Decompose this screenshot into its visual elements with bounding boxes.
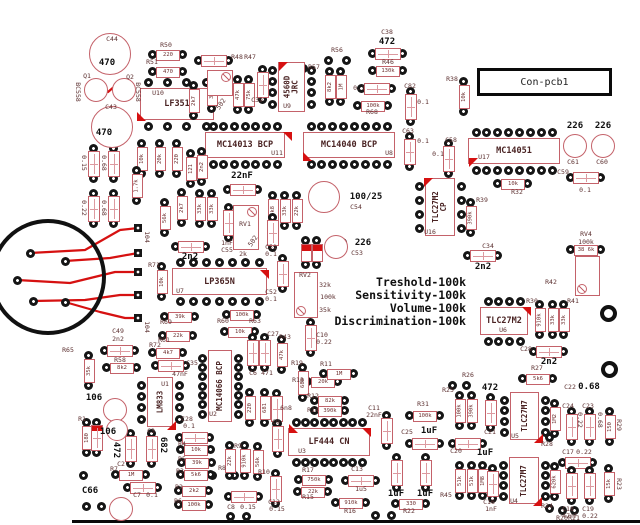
- ic-label: LF444 CN: [309, 437, 350, 447]
- resistor-39k: 39k: [185, 458, 209, 469]
- silkscreen-label-r4: R4: [178, 440, 186, 448]
- resistor-2k7: 2k7: [189, 89, 200, 113]
- resistor-value: 390k: [468, 211, 474, 224]
- solder-pad: [241, 258, 250, 267]
- resistor-value: 22k: [227, 456, 233, 466]
- silkscreen-label-104: 104: [143, 321, 151, 333]
- resistor-390k: 390k: [467, 399, 478, 423]
- silkscreen-label-472: 472: [482, 383, 498, 393]
- solder-pad: [482, 128, 491, 137]
- silkscreen-label-r11: R11: [320, 360, 332, 368]
- capacitor: [108, 196, 120, 222]
- solder-pad: [268, 100, 277, 109]
- silkscreen-label-rv4: RV4: [580, 230, 592, 238]
- silkscreen-label-0-15: 0.15: [80, 155, 88, 171]
- solder-pad: [175, 381, 184, 390]
- solder-pad: [499, 461, 508, 470]
- solder-pad: [504, 128, 513, 137]
- solder-pad: [202, 297, 211, 306]
- solder-pad: [516, 297, 525, 306]
- silkscreen-label-r20: R20: [556, 514, 568, 522]
- solder-pad: [494, 337, 503, 346]
- solder-pad: [541, 461, 550, 470]
- silkscreen-label-1uf: 1uF: [417, 489, 433, 499]
- capacitor: [146, 436, 158, 462]
- ic-label: LF351: [164, 99, 190, 109]
- solder-pad: [526, 128, 535, 137]
- silkscreen-label-100-25: 100/25: [350, 192, 383, 202]
- capacitor: [108, 151, 120, 177]
- solder-pad: [189, 297, 198, 306]
- silkscreen-label-22nf: 22nF: [366, 411, 382, 419]
- resistor-681: 681: [260, 396, 271, 420]
- silkscreen-label-r56: R56: [331, 46, 343, 54]
- silkscreen-label-r57: R57: [308, 63, 320, 71]
- resistor-1M: 1M: [119, 470, 143, 481]
- pin1-marker-icon: [283, 132, 292, 141]
- solder-pad: [457, 210, 466, 219]
- solder-pad: [500, 406, 509, 415]
- silkscreen-label-r21: R21: [568, 514, 580, 522]
- solder-pad: [176, 297, 185, 306]
- silkscreen-label-c39: C39: [251, 96, 263, 104]
- resistor-100k: 100k: [455, 399, 466, 423]
- solder-pad: [548, 166, 557, 175]
- capacitor: [566, 473, 578, 499]
- con-pcb1-label: Con-pcb1: [520, 77, 568, 88]
- resistor-470: 470: [156, 67, 180, 78]
- capacitor: [487, 471, 499, 497]
- silkscreen-label-c3: C3: [147, 427, 155, 435]
- pin1-marker-icon: [137, 112, 146, 121]
- capacitor: [247, 340, 259, 366]
- silkscreen-label-0-1: 0.1: [265, 250, 277, 258]
- solder-pad: [255, 258, 264, 267]
- transistor-outline: [112, 78, 136, 102]
- silkscreen-label-106: 106: [86, 393, 102, 403]
- resistor-value: 2k7: [179, 203, 185, 213]
- silkscreen-label-c28: C28: [520, 345, 532, 353]
- solder-pad: [292, 458, 301, 467]
- silkscreen-label-471: 471: [261, 369, 273, 377]
- resistor-2k2: 2k2: [182, 486, 206, 497]
- capacitor: [470, 250, 496, 262]
- silkscreen-label-r48: R48: [231, 53, 243, 61]
- ic-label: TLC27M2: [486, 316, 522, 326]
- silkscreen-label-472: 472: [111, 442, 121, 458]
- capacitor: [88, 196, 100, 222]
- solder-pad: [144, 122, 153, 131]
- silkscreen-label-682: 682: [158, 437, 168, 453]
- solder-pad: [541, 471, 550, 480]
- resistor-value: 1M8: [480, 476, 486, 486]
- resistor-130k: 130k: [376, 66, 400, 77]
- silkscreen-label-c35: C35: [186, 359, 198, 367]
- resistor-value: 100k: [457, 404, 463, 417]
- silkscreen-label-r41: R41: [567, 297, 579, 305]
- solder-pad: [383, 160, 392, 169]
- diode: [312, 244, 323, 262]
- solder-pad: [209, 160, 218, 169]
- capacitor: [125, 436, 137, 462]
- silkscreen-label-0-22: 0.22: [316, 338, 332, 346]
- silkscreen-label-u7: U7: [176, 287, 184, 295]
- resistor-8k2: 8k2: [325, 75, 336, 99]
- capacitor: [259, 340, 271, 366]
- electrolytic-capacitor: [91, 106, 133, 148]
- solder-pad: [230, 122, 239, 131]
- silkscreen-label-r14: R14: [307, 406, 319, 414]
- board-edge-line: [72, 520, 640, 523]
- solder-pad: [61, 257, 70, 266]
- solder-pad: [226, 512, 235, 521]
- resistor-value: 33k: [282, 206, 288, 216]
- resistor-value: 10k: [139, 154, 145, 164]
- solder-pad: [472, 128, 481, 137]
- silkscreen-label-c6: C6: [249, 369, 257, 377]
- solder-pad: [97, 502, 106, 511]
- silkscreen-label-r17: R17: [302, 466, 314, 474]
- silkscreen-label-0-1: 0.1: [432, 150, 444, 158]
- silkscreen-label-c59: C59: [557, 168, 569, 176]
- silkscreen-label-r31: R31: [417, 400, 429, 408]
- resistor-220: 220: [245, 396, 256, 420]
- silkscreen-label-u9: U9: [283, 102, 291, 110]
- solder-pad: [383, 122, 392, 131]
- solder-pad: [175, 403, 184, 412]
- silkscreen-label-226: 226: [595, 121, 611, 131]
- silkscreen-label-r45: R45: [440, 491, 452, 499]
- silkscreen-label-c53: C53: [351, 249, 363, 257]
- solder-pad: [350, 160, 359, 169]
- solder-pad: [79, 471, 88, 480]
- solder-pad: [499, 481, 508, 490]
- capacitor: [584, 414, 596, 440]
- silkscreen-label-q1: Q1: [83, 72, 91, 80]
- solder-pad: [361, 122, 370, 131]
- solder-pad: [198, 410, 207, 419]
- silkscreen-label-c23: C23: [582, 402, 594, 410]
- resistor-5k6: 5k6: [184, 470, 208, 481]
- solder-pad: [320, 418, 329, 427]
- silkscreen-label-u16: U16: [424, 228, 436, 236]
- resistor-620k: 620k: [550, 470, 561, 494]
- silkscreen-label-r71: R71: [148, 261, 160, 269]
- silkscreen-label-470: 470: [99, 58, 115, 68]
- solder-pad: [457, 224, 466, 233]
- solder-pad: [504, 166, 513, 175]
- resistor-10k: 10k: [184, 445, 208, 456]
- silkscreen-label-r28: R28: [541, 440, 553, 448]
- silkscreen-label-0-1: 0.1: [265, 295, 277, 303]
- electrolytic-capacitor: [308, 181, 340, 213]
- solder-pad: [198, 372, 207, 381]
- solder-pad: [198, 363, 207, 372]
- solder-pad: [515, 128, 524, 137]
- capacitor: [230, 184, 256, 196]
- resistor-220: 220: [156, 50, 180, 61]
- resistor-value: 56k: [255, 457, 261, 467]
- silkscreen-label-0-68: 0.68: [578, 382, 600, 392]
- silkscreen-label-bc558: BC558: [134, 82, 142, 102]
- solder-pad: [307, 77, 316, 86]
- resistor-value: 47k: [279, 350, 285, 360]
- silkscreen-label-r46: R46: [382, 58, 394, 66]
- silkscreen-label-0-68: 0.68: [100, 155, 108, 171]
- silkscreen-label-c44: C44: [106, 35, 118, 43]
- resistor-value: 33k: [561, 315, 567, 325]
- diode: [301, 244, 312, 262]
- silkscreen-label-1uf: 1uF: [421, 426, 437, 436]
- resistor-22k: 22k: [292, 199, 303, 223]
- silkscreen-label-r3: R3: [176, 467, 184, 475]
- silkscreen-label-r9: R9: [234, 442, 242, 450]
- solder-pad: [198, 382, 207, 391]
- solder-pad: [415, 182, 424, 191]
- capacitor: [391, 460, 403, 486]
- solder-pad: [219, 122, 228, 131]
- resistor-38-6k: 38 6k: [574, 245, 598, 256]
- silkscreen-label-r32: R32: [511, 188, 523, 196]
- resistor-value: 180: [84, 433, 90, 443]
- solder-pad: [339, 122, 348, 131]
- silkscreen-label-r72: R72: [149, 341, 161, 349]
- silkscreen-label-r13: R13: [292, 376, 304, 384]
- silkscreen-label-47nf: 47nF: [172, 370, 188, 378]
- solder-pad: [234, 363, 243, 372]
- resistor-150: 150: [605, 415, 616, 439]
- solder-pad: [526, 166, 535, 175]
- solder-pad: [13, 276, 22, 285]
- silkscreen-label-c61: C61: [567, 158, 579, 166]
- silkscreen-label-r30: R30: [526, 297, 538, 305]
- silkscreen-label-0-22: 0.22: [582, 512, 598, 520]
- solder-pad: [339, 458, 348, 467]
- solder-pad: [242, 512, 251, 521]
- solder-pad: [541, 406, 550, 415]
- silkscreen-label-rv1: RV1: [239, 220, 251, 228]
- solder-pad: [262, 160, 271, 169]
- silkscreen-label-r24: R24: [541, 502, 553, 510]
- resistor-value: 681: [262, 403, 268, 413]
- ic-label: 4560D JRC: [283, 76, 299, 99]
- capacitor: [485, 400, 497, 426]
- solder-pad: [537, 128, 546, 137]
- electrolytic-capacitor: [563, 134, 587, 158]
- ic-label: TLC27M2 CP: [432, 191, 448, 223]
- resistor-value: 51k: [457, 476, 463, 486]
- solder-pad: [198, 400, 207, 409]
- trimmer-screw-icon: [296, 306, 306, 316]
- silkscreen-label-u5: U5: [511, 432, 519, 440]
- resistor-390k: 390k: [318, 406, 342, 417]
- silkscreen-label-0-1: 0.1: [146, 491, 158, 499]
- ic-label: LP365N: [204, 277, 235, 287]
- note-discrimination: Discrimination-100k: [300, 315, 466, 328]
- resistor-750k: 750k: [302, 475, 326, 486]
- solder-pad: [175, 392, 184, 401]
- ic-label: MC14066 BCP: [216, 361, 224, 411]
- resistor-33k: 33k: [207, 197, 218, 221]
- solder-pad: [415, 224, 424, 233]
- resistor-value: 390k: [469, 404, 475, 417]
- silkscreen-label-106: 106: [100, 427, 116, 437]
- solder-pad: [137, 392, 146, 401]
- silkscreen-label-0-22: 0.22: [576, 412, 584, 428]
- silkscreen-label-r15: R15: [302, 493, 314, 501]
- ic-label: MC14051: [496, 146, 532, 156]
- solder-pad: [371, 511, 380, 520]
- silkscreen-label-100k: 100k: [578, 238, 594, 246]
- solder-pad: [500, 428, 509, 437]
- solder-pad: [342, 56, 351, 65]
- silkscreen-label-0-22: 0.22: [576, 448, 592, 456]
- capacitor: [88, 151, 100, 177]
- solder-pad: [310, 418, 319, 427]
- capacitor: [443, 146, 455, 172]
- resistor-value: 2k7: [191, 96, 197, 106]
- solder-pad: [307, 100, 316, 109]
- solder-pad: [234, 391, 243, 400]
- resistor-value: 20k: [157, 154, 163, 164]
- silkscreen-label-0-68: 0.68: [100, 200, 108, 216]
- ic-lf351: LF351: [140, 88, 214, 120]
- capacitor: [412, 438, 438, 450]
- electrolytic-capacitor: [591, 134, 615, 158]
- silkscreen-label-c55: C55: [221, 246, 233, 254]
- silkscreen-label-104: 104: [143, 231, 151, 243]
- silkscreen-label-c27: C27: [267, 330, 279, 338]
- solder-pad: [251, 160, 260, 169]
- solder-pad: [348, 418, 357, 427]
- silkscreen-label-c38: C38: [381, 28, 393, 36]
- solder-pad: [505, 297, 514, 306]
- square-pad: [134, 291, 142, 299]
- silkscreen-label-0-1: 0.1: [579, 186, 591, 194]
- solder-pad: [307, 88, 316, 97]
- silkscreen-label-c13: C13: [351, 465, 363, 473]
- silkscreen-label-35k: 35k: [319, 306, 331, 314]
- silkscreen-label-c24: C24: [562, 402, 574, 410]
- silkscreen-label-6n8: 6n8: [280, 404, 292, 412]
- solder-pad: [482, 166, 491, 175]
- solder-pad: [26, 249, 35, 258]
- resistor-15k: 15k: [604, 472, 615, 496]
- silkscreen-label-r12: R12: [307, 392, 319, 400]
- resistor-390k: 390k: [466, 206, 477, 230]
- resistor-10k: 10k: [459, 85, 470, 109]
- resistor-value: 8k2: [327, 82, 333, 92]
- resistor-910k: 910k: [535, 308, 546, 332]
- silkscreen-label-bc558: BC558: [74, 82, 82, 102]
- silkscreen-label-r2: R2: [175, 483, 183, 491]
- solder-pad: [209, 122, 218, 131]
- silkscreen-label-c2: C2: [117, 460, 125, 468]
- silkscreen-label-r50: R50: [160, 41, 172, 49]
- capacitor: [277, 261, 289, 287]
- resistor-35k: 35k: [84, 359, 95, 383]
- solder-pad: [29, 297, 38, 306]
- silkscreen-label-c20: C20: [450, 447, 462, 455]
- ic-label: TLC27M7: [521, 400, 529, 432]
- solder-pad: [137, 381, 146, 390]
- solder-pad: [350, 122, 359, 131]
- solder-pad: [215, 258, 224, 267]
- solder-pad: [324, 56, 333, 65]
- silkscreen-label-r60: R60: [217, 317, 229, 325]
- solder-pad: [241, 297, 250, 306]
- resistor-33k: 33k: [280, 199, 291, 223]
- solder-pad: [219, 160, 228, 169]
- silkscreen-label-r47: R47: [244, 53, 256, 61]
- silkscreen-label-u6: U6: [499, 326, 507, 334]
- resistor-4k7: 4k7: [156, 348, 180, 359]
- trimmer-screw-icon: [221, 72, 231, 82]
- silkscreen-label-1uf: 1uF: [477, 448, 493, 458]
- silkscreen-label-r68: R68: [366, 108, 378, 116]
- silkscreen-label-r10: R10: [258, 468, 270, 476]
- silkscreen-label-470: 470: [96, 128, 112, 138]
- solder-pad: [484, 337, 493, 346]
- pcb-silkscreen-board: Con-pcb1 Treshold-100k Sensitivity-100k …: [0, 0, 640, 525]
- resistor-33k: 33k: [548, 308, 559, 332]
- resistor-value: 1.7k: [134, 179, 140, 192]
- silkscreen-label-c58: C58: [445, 136, 457, 144]
- silkscreen-label-1uf: 1uF: [388, 489, 404, 499]
- solder-pad: [499, 471, 508, 480]
- silkscreen-label-r51: R51: [146, 58, 158, 66]
- solder-pad: [541, 481, 550, 490]
- trimmer-screw-icon: [247, 207, 257, 217]
- resistor-33k: 33k: [559, 308, 570, 332]
- resistor-33k: 33k: [195, 197, 206, 221]
- electrolytic-capacitor: [324, 235, 348, 259]
- solder-pad: [137, 403, 146, 412]
- solder-pad: [515, 166, 524, 175]
- silkscreen-label-0-15: 0.15: [240, 503, 256, 511]
- resistor-value: 121: [188, 164, 194, 174]
- silkscreen-label-2n2: 2n2: [182, 252, 198, 262]
- silkscreen-label-0-1: 0.1: [183, 422, 195, 430]
- solder-pad: [328, 122, 337, 131]
- capacitor: [201, 55, 227, 67]
- silkscreen-label-2n2: 2n2: [475, 262, 491, 272]
- silkscreen-label-q2: Q2: [126, 73, 134, 81]
- silkscreen-label-r42: R42: [545, 278, 557, 286]
- solder-pad: [241, 160, 250, 169]
- capacitor: [257, 72, 269, 98]
- silkscreen-label-r5: R5: [178, 455, 186, 463]
- solder-pad: [61, 298, 70, 307]
- pin1-marker-icon: [167, 421, 176, 430]
- silkscreen-label-r7: R7: [110, 465, 118, 473]
- silkscreen-label-2n2: 2n2: [541, 357, 557, 367]
- silkscreen-label-c49: C49: [112, 327, 124, 335]
- silkscreen-label-u4: U4: [510, 497, 518, 505]
- capacitor: [573, 172, 599, 184]
- solder-pad: [537, 166, 546, 175]
- resistor-value: 220: [247, 403, 253, 413]
- capacitor: [381, 418, 393, 444]
- solder-pad: [500, 396, 509, 405]
- pin1-marker-icon: [362, 428, 371, 437]
- capacitor: [420, 460, 432, 486]
- silkscreen-label-2k: 2k: [239, 250, 247, 258]
- resistor-value: 1M: [338, 84, 344, 91]
- resistor-2k7: 2k7: [177, 196, 188, 220]
- silkscreen-label-r63: R63: [249, 317, 261, 325]
- solder-pad: [198, 354, 207, 363]
